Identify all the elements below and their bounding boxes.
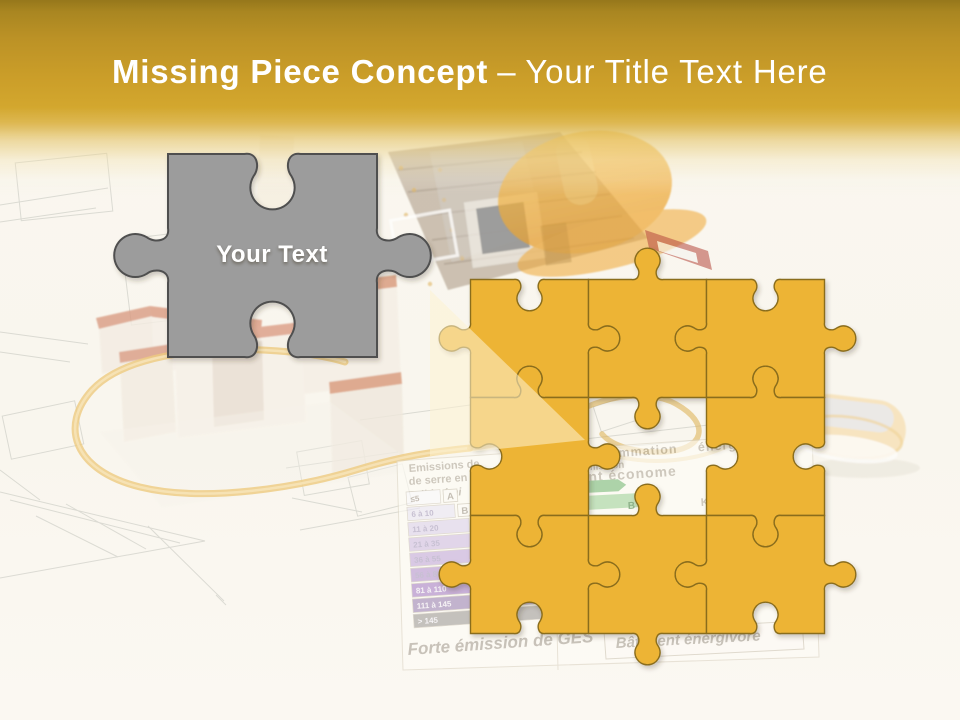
- puzzle-layer: [0, 0, 960, 720]
- gray-puzzle-piece[interactable]: [114, 154, 431, 357]
- gray-piece-group: [114, 154, 431, 357]
- slide-canvas: Emissions de de serre en Faible émi ≤5A6…: [0, 0, 960, 720]
- puzzle-grid: [439, 248, 856, 665]
